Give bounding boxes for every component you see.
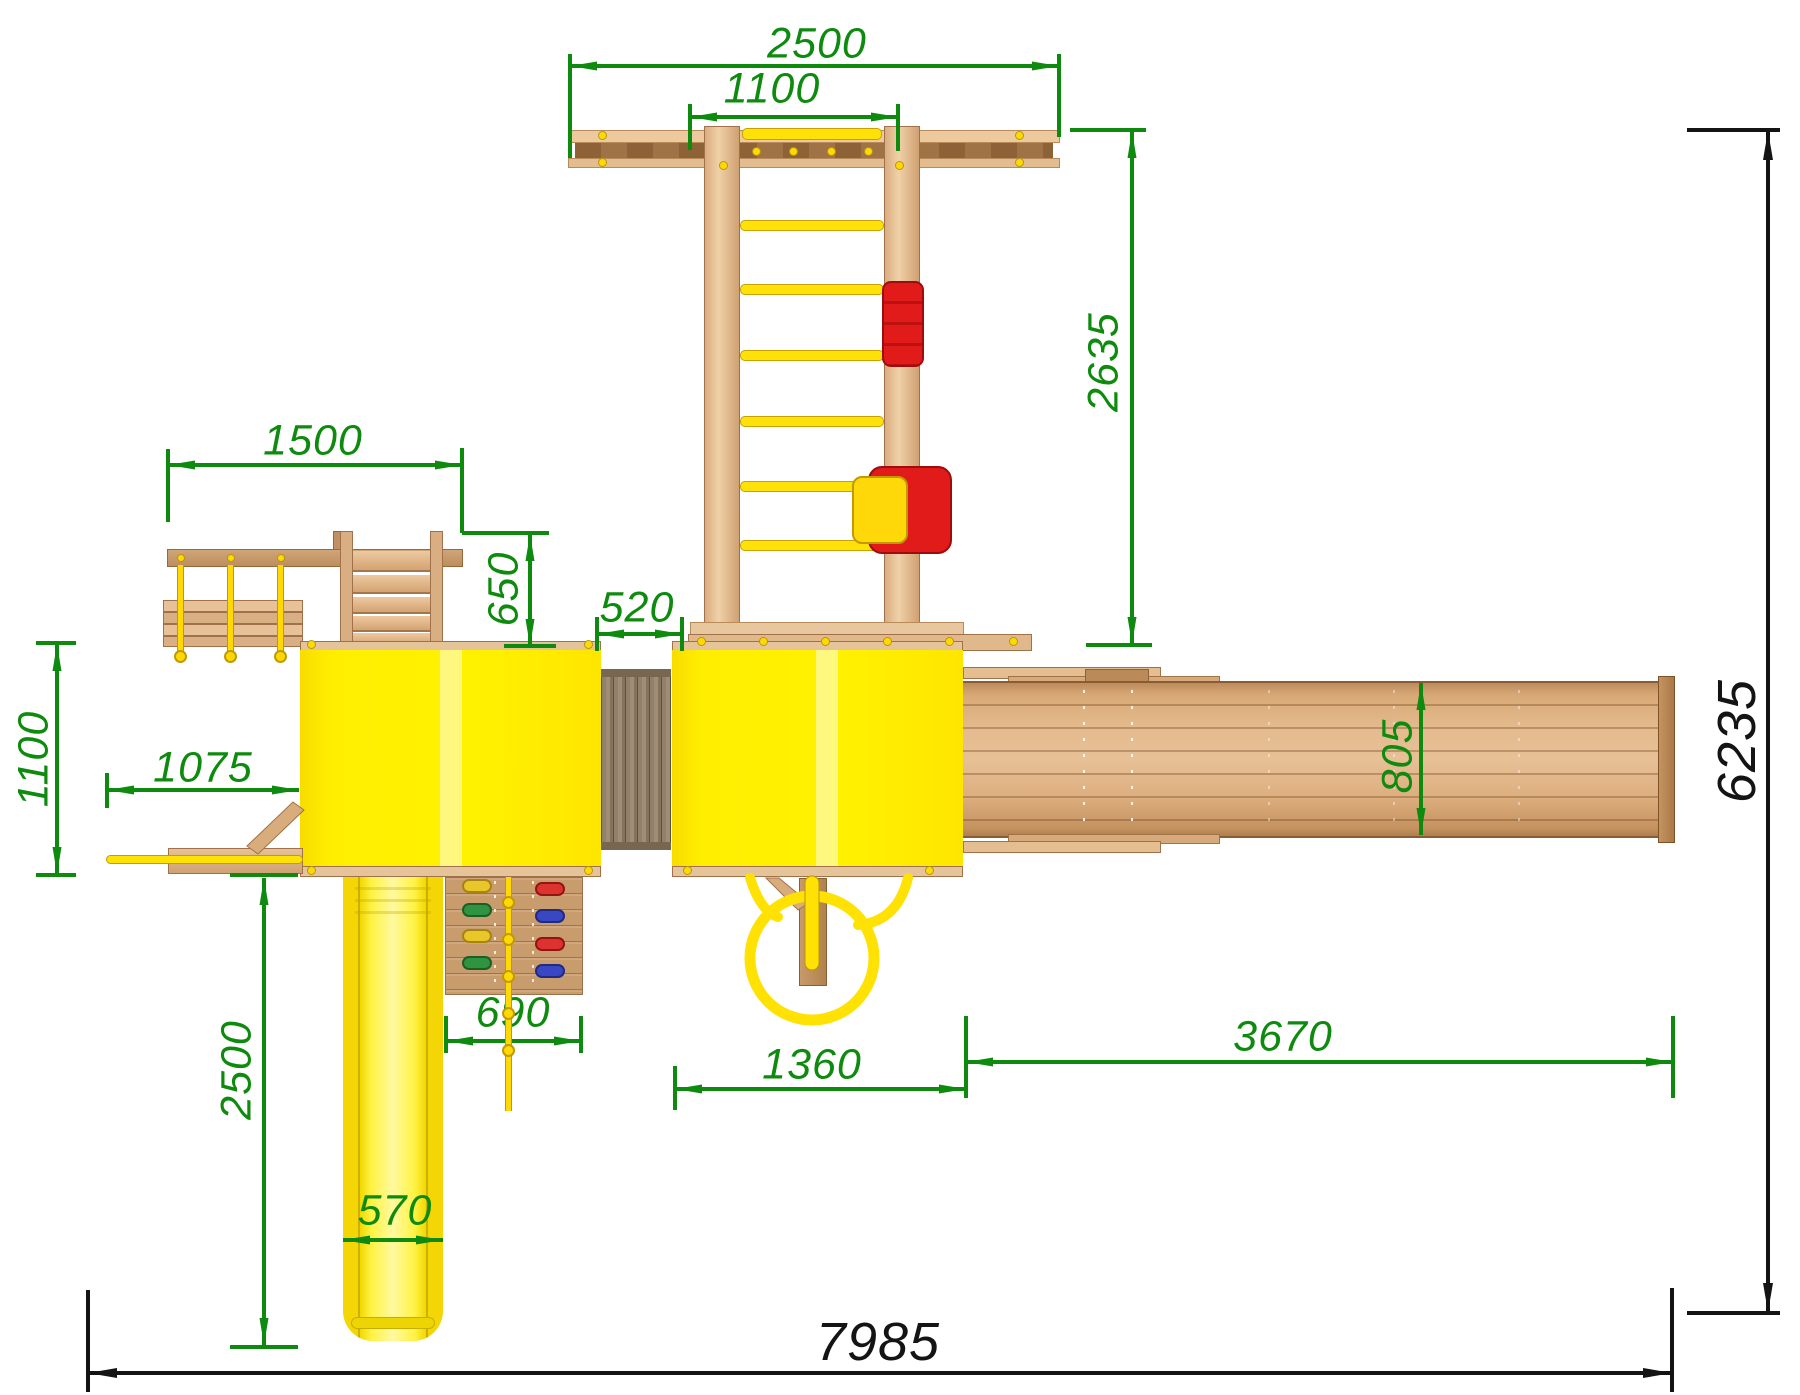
- swing-rung: [740, 284, 884, 295]
- screw-line: [494, 881, 496, 991]
- bridge-end-cap: [601, 842, 671, 850]
- climb-hold-blue: [535, 909, 565, 923]
- climb-hold-green: [462, 903, 492, 917]
- stair-rail-left: [340, 531, 353, 649]
- swing-rope: [177, 565, 184, 653]
- walkway-deck: [963, 681, 1674, 838]
- stair-step: [353, 551, 430, 572]
- dim-label-slide-width: 570: [358, 1190, 433, 1233]
- baby-swing-seat-yellow: [852, 476, 908, 544]
- knotted-rope: [505, 877, 512, 1111]
- bolt-icon: [307, 866, 316, 875]
- bolt-icon: [584, 640, 593, 649]
- bolt-icon: [895, 161, 904, 170]
- diagonal-brace: [247, 802, 304, 854]
- stair-step: [353, 597, 430, 614]
- swing-top-beam-bottom-plank: [568, 158, 1060, 168]
- rope-knot-icon: [502, 933, 515, 946]
- swing-seat-flat: [882, 281, 924, 367]
- chain-bolt-icon: [789, 147, 798, 156]
- dim-label-stair-drop: 650: [483, 552, 526, 627]
- climb-hold-blue: [535, 964, 565, 978]
- ring-tube-left: [750, 878, 778, 917]
- dim-label-slide-run: 2500: [216, 1020, 259, 1120]
- slide-bed: [360, 877, 426, 1341]
- rope-knot-icon: [502, 1044, 515, 1057]
- swing-rung: [740, 416, 884, 427]
- slide-rail-right: [426, 877, 443, 1341]
- rope-knot-icon: [502, 896, 515, 909]
- slide-end-lip: [351, 1317, 435, 1329]
- dim-label-pole-reach: 1075: [153, 747, 253, 790]
- bolt-icon: [945, 637, 954, 646]
- slide-ridge: [355, 911, 431, 914]
- rope-knot-icon: [502, 970, 515, 983]
- bolt-icon: [227, 554, 235, 562]
- bolt-icon: [277, 554, 285, 562]
- screw-line: [1518, 690, 1520, 830]
- left-tower-bottom-strip: [300, 866, 601, 877]
- stair-rail-right: [430, 531, 443, 649]
- climb-hold-red: [535, 882, 565, 896]
- bolt-icon: [821, 637, 830, 646]
- rope-hook-icon: [274, 650, 287, 663]
- bolt-icon: [683, 866, 692, 875]
- bolt-icon: [719, 161, 728, 170]
- dim-label-left-beam: 1500: [263, 420, 363, 463]
- climb-hold-red: [535, 937, 565, 951]
- hand-bar: [106, 855, 303, 864]
- chain-bolt-icon: [827, 147, 836, 156]
- walkway-side-rail-bottom: [963, 841, 1161, 853]
- left-tower-roof-stripe: [440, 650, 462, 868]
- bolt-icon: [1015, 131, 1024, 140]
- dim-label-tower-span: 1360: [762, 1044, 862, 1087]
- technical-drawing-canvas: 2500 1100 2635 1500 650 520 1100 1075 25…: [0, 0, 1800, 1395]
- bolt-icon: [584, 866, 593, 875]
- dim-label-walkway-length: 3670: [1233, 1016, 1333, 1059]
- rope-knot-icon: [502, 1007, 515, 1020]
- swing-rail-right: [884, 126, 920, 650]
- slide-ridge: [355, 887, 431, 890]
- dim-label-top-span: 2500: [767, 23, 867, 66]
- swing-top-beam-web: [575, 143, 1053, 159]
- screw-line: [1131, 690, 1133, 830]
- ring-tube-right: [858, 878, 908, 925]
- bolt-icon: [925, 866, 934, 875]
- chain-bolt-icon: [864, 147, 873, 156]
- bolt-icon: [307, 640, 316, 649]
- climb-hold-yellow: [462, 879, 492, 893]
- dim-label-swing-width: 1100: [724, 68, 820, 111]
- dim-label-bridge-width: 520: [600, 587, 675, 630]
- walkway-end-cap: [1658, 676, 1675, 843]
- swing-rung: [740, 220, 884, 231]
- bridge-end-cap: [601, 669, 671, 677]
- swing-rail-left: [704, 126, 740, 650]
- dim-label-left-overhang: 1100: [13, 711, 56, 807]
- bolt-icon: [1015, 158, 1024, 167]
- dim-label-walkway-width: 805: [1377, 719, 1420, 794]
- screw-line: [1268, 690, 1270, 830]
- slide-rail-left: [343, 877, 360, 1341]
- slide: [343, 877, 443, 1341]
- chain-bolt-icon: [752, 147, 761, 156]
- bolt-icon: [177, 554, 185, 562]
- rope-hook-icon: [174, 650, 187, 663]
- swing-top-yellow-bar: [742, 128, 882, 140]
- screw-line: [532, 881, 534, 991]
- climb-hold-yellow: [462, 929, 492, 943]
- bolt-icon: [1009, 637, 1018, 646]
- stair-step: [353, 616, 430, 632]
- bolt-icon: [883, 637, 892, 646]
- ring-post: [799, 878, 827, 986]
- dim-label-total-width: 7985: [816, 1315, 940, 1369]
- bridge-deck: [601, 669, 671, 850]
- slide-ridge: [355, 899, 431, 902]
- bolt-icon: [697, 637, 706, 646]
- bolt-icon: [598, 158, 607, 167]
- screw-line: [1083, 690, 1085, 830]
- swing-rope: [277, 565, 284, 653]
- right-tower-bottom-strip: [672, 866, 963, 877]
- climb-hold-green: [462, 956, 492, 970]
- rope-hook-icon: [224, 650, 237, 663]
- right-tower-roof-stripe: [816, 650, 838, 868]
- dim-label-swing-depth: 2635: [1083, 312, 1126, 412]
- swing-rung: [740, 350, 884, 361]
- stair-step: [353, 575, 430, 594]
- swing-rope: [227, 565, 234, 653]
- bolt-icon: [598, 131, 607, 140]
- bolt-icon: [759, 637, 768, 646]
- dim-label-total-depth: 6235: [1710, 679, 1764, 803]
